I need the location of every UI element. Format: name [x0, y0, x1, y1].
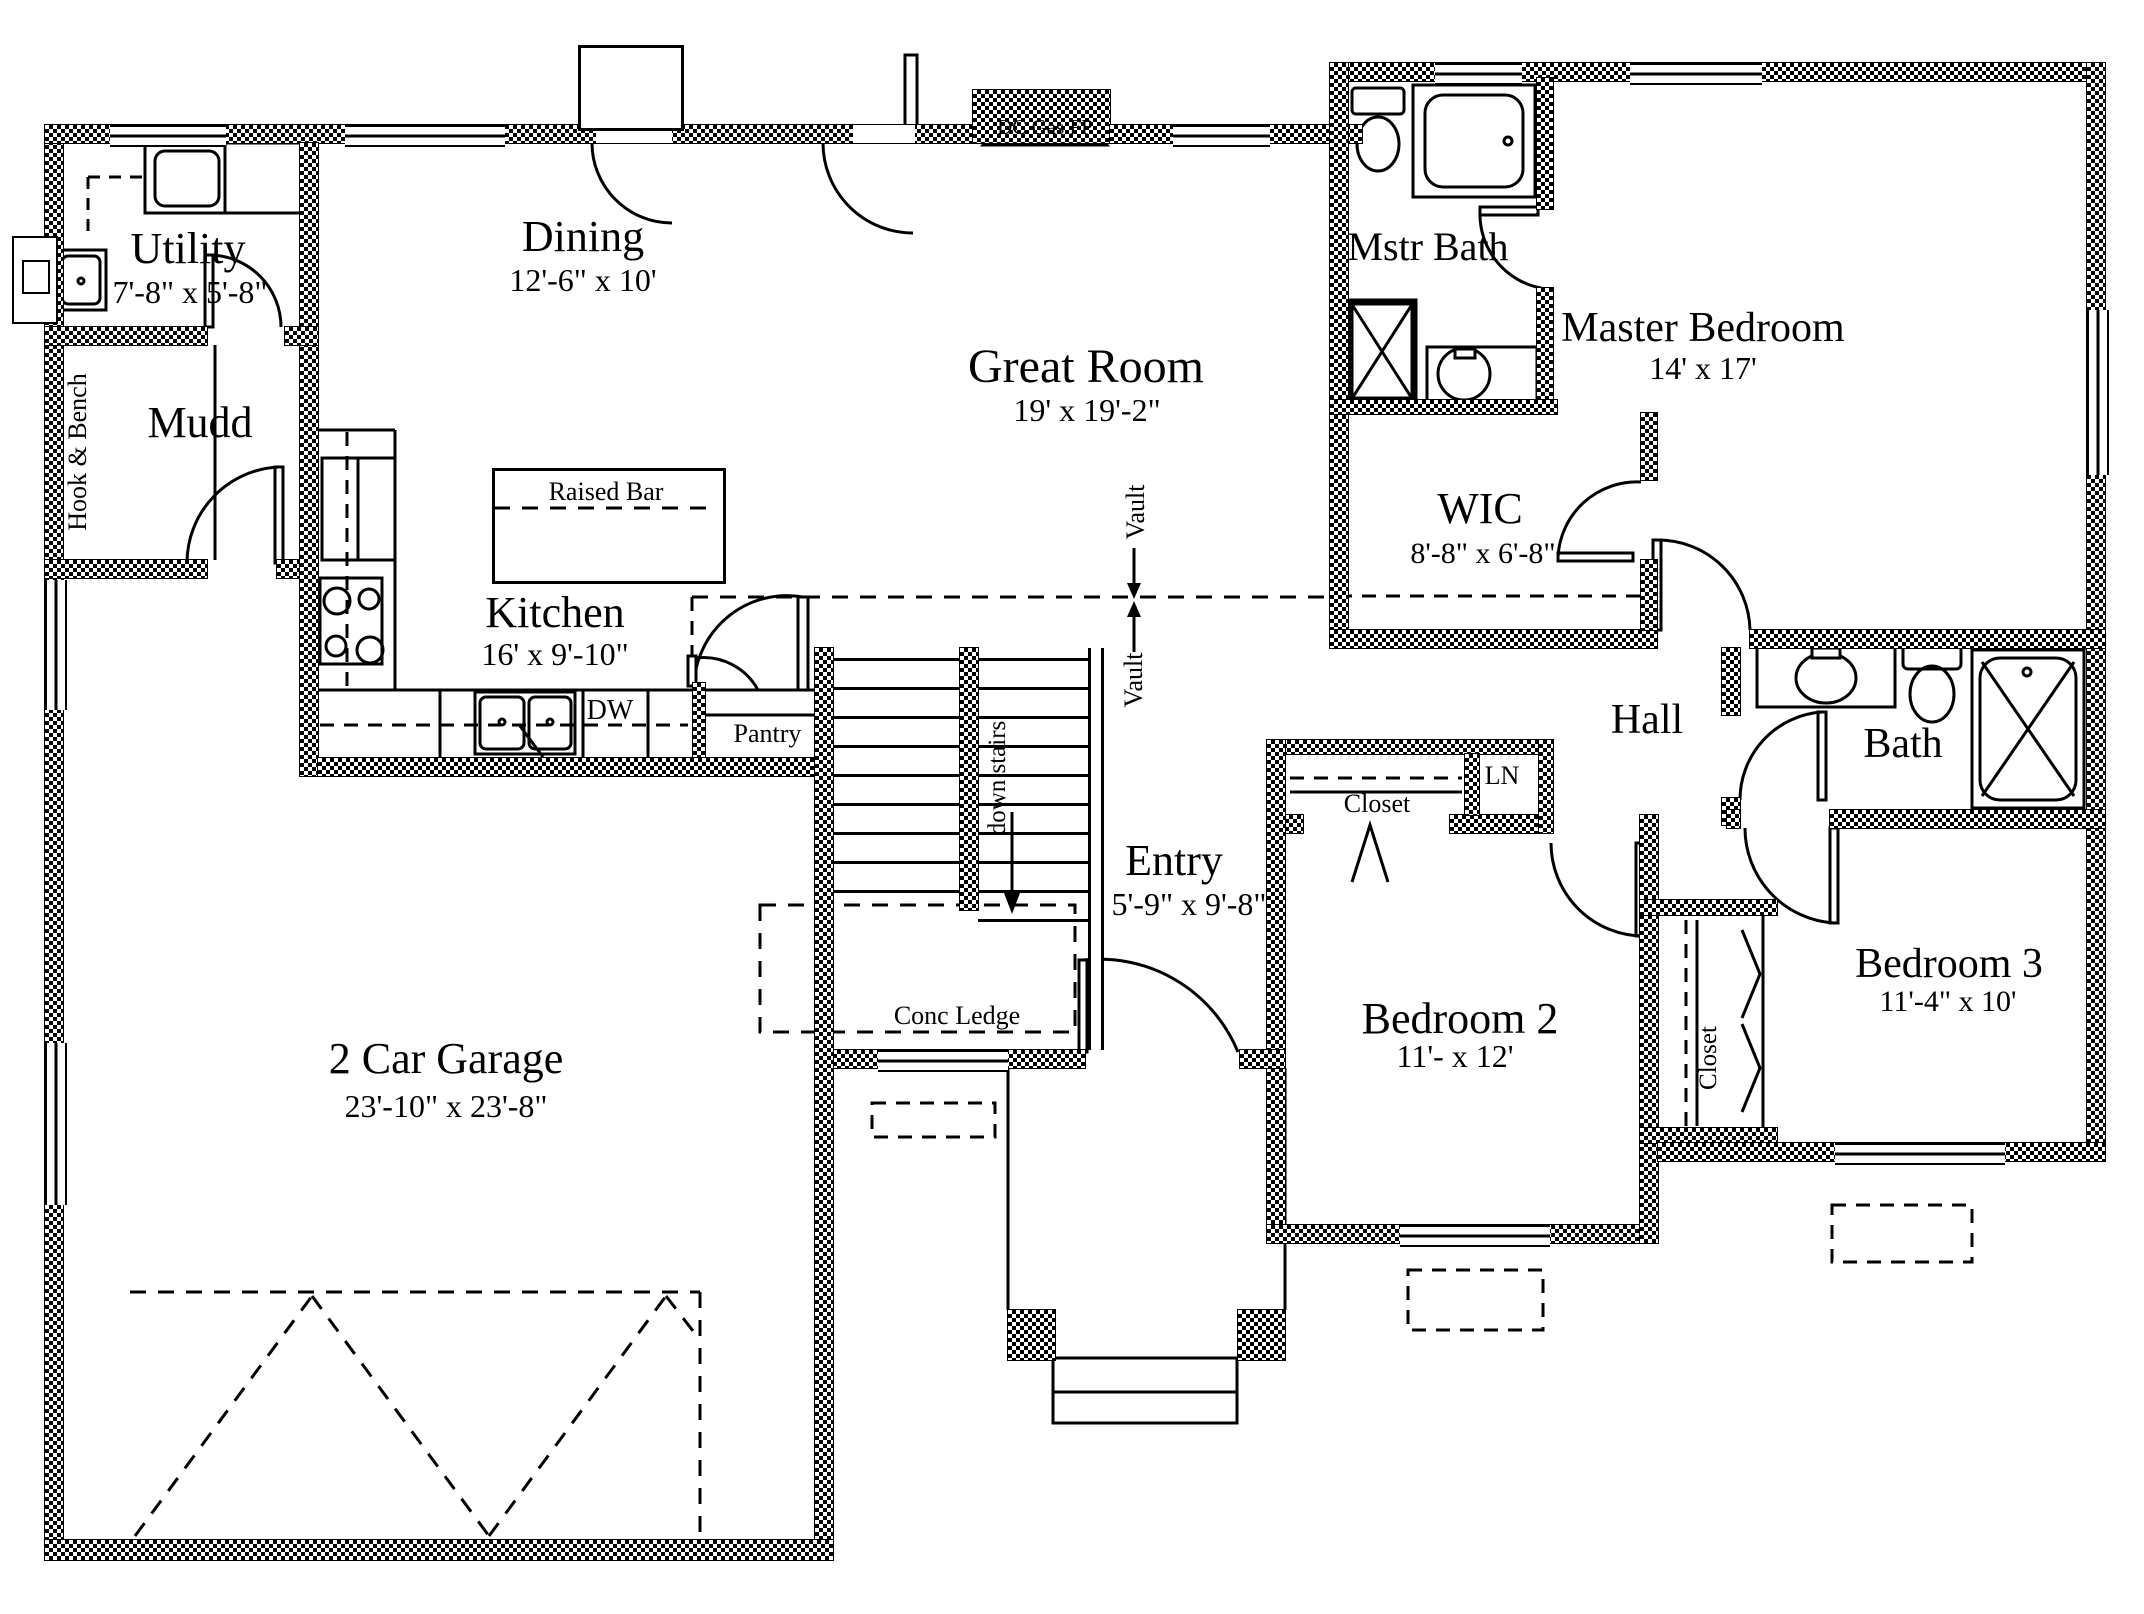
room-label-entry: Entry: [1064, 838, 1284, 884]
room-label-kitchen: Kitchen: [430, 590, 680, 636]
wall-pantry-west: [693, 683, 705, 758]
wall-closet3-bottom: [1640, 1128, 1777, 1143]
room-label-utility: Utility: [78, 226, 298, 272]
room-dims-entry: 5'-9" x 9'-8": [1054, 888, 1324, 922]
bath-tub-drain: [2023, 668, 2031, 676]
wall-exterior-east: [2087, 63, 2105, 1161]
wall-closet3-top: [1640, 900, 1777, 915]
patio-door-leaf: [905, 55, 917, 128]
pantry-door-leaf: [688, 656, 696, 686]
burner-2: [359, 589, 379, 609]
wall-bath-wic-divider: [1330, 400, 1557, 414]
room-dims-utility: 7'-8" x 5'-8": [70, 276, 310, 310]
room-label-bath: Bath: [1828, 722, 1978, 766]
entry-door-leaf: [1079, 960, 1087, 1052]
room-label-mudd: Mudd: [90, 400, 310, 446]
wall-bath-south-a: [1727, 810, 1740, 828]
room-label-master-bedroom: Master Bedroom: [1553, 306, 1853, 350]
wall-garage-north: [318, 758, 833, 776]
wall-kitchen-west: [300, 143, 318, 776]
room-dims-master-bedroom: 14' x 17': [1568, 352, 1838, 386]
wall-mstrbath-east-b: [1537, 288, 1553, 414]
mstr-shower-x: [1353, 306, 1411, 397]
closet2-bifold-icon: [1352, 825, 1388, 882]
laundry-basin: [155, 151, 219, 206]
wall-linen-south: [1450, 815, 1550, 833]
room-label-great-room: Great Room: [936, 342, 1236, 392]
wall-garage-south: [45, 1540, 833, 1560]
bedroom3-door-leaf: [1830, 828, 1838, 923]
wall-utility-south-b: [285, 327, 318, 345]
closet-bedroom3-label: Closet: [1696, 998, 1726, 1118]
wall-wic-east-b: [1641, 560, 1657, 630]
porch-stoop-dashed: [872, 1103, 995, 1137]
vault-lower-label: Vault: [1120, 630, 1148, 730]
mstr-tub-platform: [1413, 85, 1535, 197]
window-garage-left-lower: [45, 1043, 67, 1205]
wall-wic-east-a: [1641, 413, 1657, 480]
room-dims-garage: 23'-10" x 23'-8": [296, 1090, 596, 1124]
patio-door-arc: [823, 143, 913, 233]
dishwasher-label: DW: [575, 696, 645, 725]
wall-bath-south-b: [1830, 810, 2105, 828]
room-dims-great-room: 19' x 19'-2": [952, 394, 1222, 428]
wall-master-west: [1330, 63, 1348, 648]
room-dims-bedroom2: 11'- x 12': [1330, 1040, 1580, 1074]
closet3-bifold-icon: [1742, 930, 1760, 1112]
utility-door-step: [22, 260, 50, 294]
bath-tub-x: [1982, 662, 2074, 796]
toilet-bowl-bath: [1910, 666, 1954, 722]
wall-closet2-top: [1267, 740, 1553, 754]
bedroom3-window-well: [1832, 1205, 1972, 1262]
master-door-arc: [1657, 540, 1750, 630]
bedroom2-door-arc: [1551, 843, 1644, 936]
mudd-door-arc: [187, 467, 279, 563]
fireplace-label: DC Gas FP: [975, 116, 1115, 138]
down-stairs-label: down stairs: [985, 713, 1043, 843]
entry-door-arc: [1083, 959, 1238, 1052]
linen-label: LN: [1472, 762, 1532, 789]
stair-door-leaf: [798, 597, 808, 690]
room-label-mstr-bath: Mstr Bath: [1338, 226, 1518, 268]
pantry-door-arc: [696, 658, 758, 690]
stairs-left-run: [833, 658, 960, 908]
window-bedroom3: [1835, 1143, 2005, 1165]
porch-pillar-left: [1008, 1310, 1055, 1360]
wall-bedroom2-west: [1267, 740, 1285, 1243]
window-master-top: [1630, 63, 1762, 85]
mstr-faucet: [1455, 349, 1475, 358]
kitchen-sink-right: [529, 697, 571, 749]
wall-garage-east: [815, 648, 833, 1560]
hook-bench-label: Hook & Bench: [64, 367, 96, 537]
closet-bedroom2-label: Closet: [1312, 790, 1442, 817]
burner-4: [357, 637, 383, 663]
wall-closet2-front-stub: [1285, 815, 1303, 833]
window-greatroom: [1173, 125, 1270, 147]
bath-faucet: [1812, 648, 1840, 658]
door-opening-patio: [853, 125, 915, 143]
sink-drain-right: [547, 719, 553, 725]
vault-lower-arrowhead: [1127, 601, 1141, 617]
mstr-tub: [1425, 95, 1523, 187]
conc-ledge-label: Conc Ledge: [877, 1002, 1037, 1029]
toilet-tank-mstr: [1352, 88, 1404, 114]
window-mstrbath: [1435, 63, 1522, 85]
burner-3: [326, 636, 346, 656]
pantry-label: Pantry: [705, 720, 830, 747]
raised-bar-label: Raised Bar: [492, 478, 720, 505]
wall-master-south-b: [1750, 630, 2105, 648]
window-master-east: [2087, 310, 2109, 475]
room-label-bedroom2: Bedroom 2: [1310, 996, 1610, 1042]
vault-upper-label: Vault: [1122, 462, 1150, 562]
porch-step-1: [1053, 1358, 1237, 1392]
porch-edges: [1008, 1068, 1285, 1310]
room-label-hall: Hall: [1572, 698, 1722, 742]
window-bedroom2: [1400, 1225, 1550, 1247]
mstr-tub-drain: [1504, 137, 1512, 145]
porch-pillar-right: [1238, 1310, 1285, 1360]
room-label-dining: Dining: [463, 214, 703, 260]
vault-upper-arrowhead: [1127, 583, 1141, 599]
kitchen-sink-left: [480, 697, 524, 749]
wall-master-south-a: [1330, 630, 1657, 648]
window-garage-left-upper: [45, 580, 67, 710]
wall-front-b: [1240, 1050, 1285, 1068]
bath-sink: [1796, 653, 1856, 703]
room-label-garage: 2 Car Garage: [296, 1036, 596, 1082]
room-label-wic: WIC: [1380, 486, 1580, 532]
toilet-bowl-mstr: [1357, 117, 1399, 171]
bedroom2-window-well: [1408, 1270, 1543, 1330]
room-dims-dining: 12'-6" x 10': [458, 264, 708, 298]
wall-bath-west-a: [1722, 648, 1740, 715]
mudd-door-leaf: [275, 467, 283, 563]
window-dining: [345, 125, 505, 147]
room-dims-kitchen: 16' x 9'-10": [425, 638, 685, 672]
room-dims-wic: 8'-8" x 6'-8": [1368, 538, 1598, 570]
bay-window-box: [578, 45, 684, 131]
window-entry: [878, 1050, 1008, 1072]
floor-plan: Utility 7'-8" x 5'-8" Mudd Hook & Bench …: [0, 0, 2144, 1614]
wall-stair-divider: [960, 648, 978, 910]
bay-door-arc: [592, 143, 672, 223]
room-label-bedroom3: Bedroom 3: [1799, 942, 2099, 986]
wall-mudd-south-a: [45, 560, 207, 578]
mstrbath-door-leaf: [1480, 207, 1538, 215]
bath-door-leaf: [1818, 712, 1826, 800]
wall-mstrbath-east-a: [1537, 78, 1553, 209]
sink-drain-left: [499, 719, 505, 725]
bath-door-arc: [1740, 712, 1822, 800]
wall-bedroom2-east: [1640, 815, 1658, 1243]
room-dims-bedroom3: 11'-4" x 10': [1823, 986, 2073, 1018]
garage-door-dashed: [130, 1292, 700, 1538]
window-utility: [110, 125, 226, 147]
wall-linen-east: [1539, 740, 1553, 833]
wall-utility-south-a: [45, 327, 207, 345]
porch-step-2: [1053, 1392, 1237, 1423]
